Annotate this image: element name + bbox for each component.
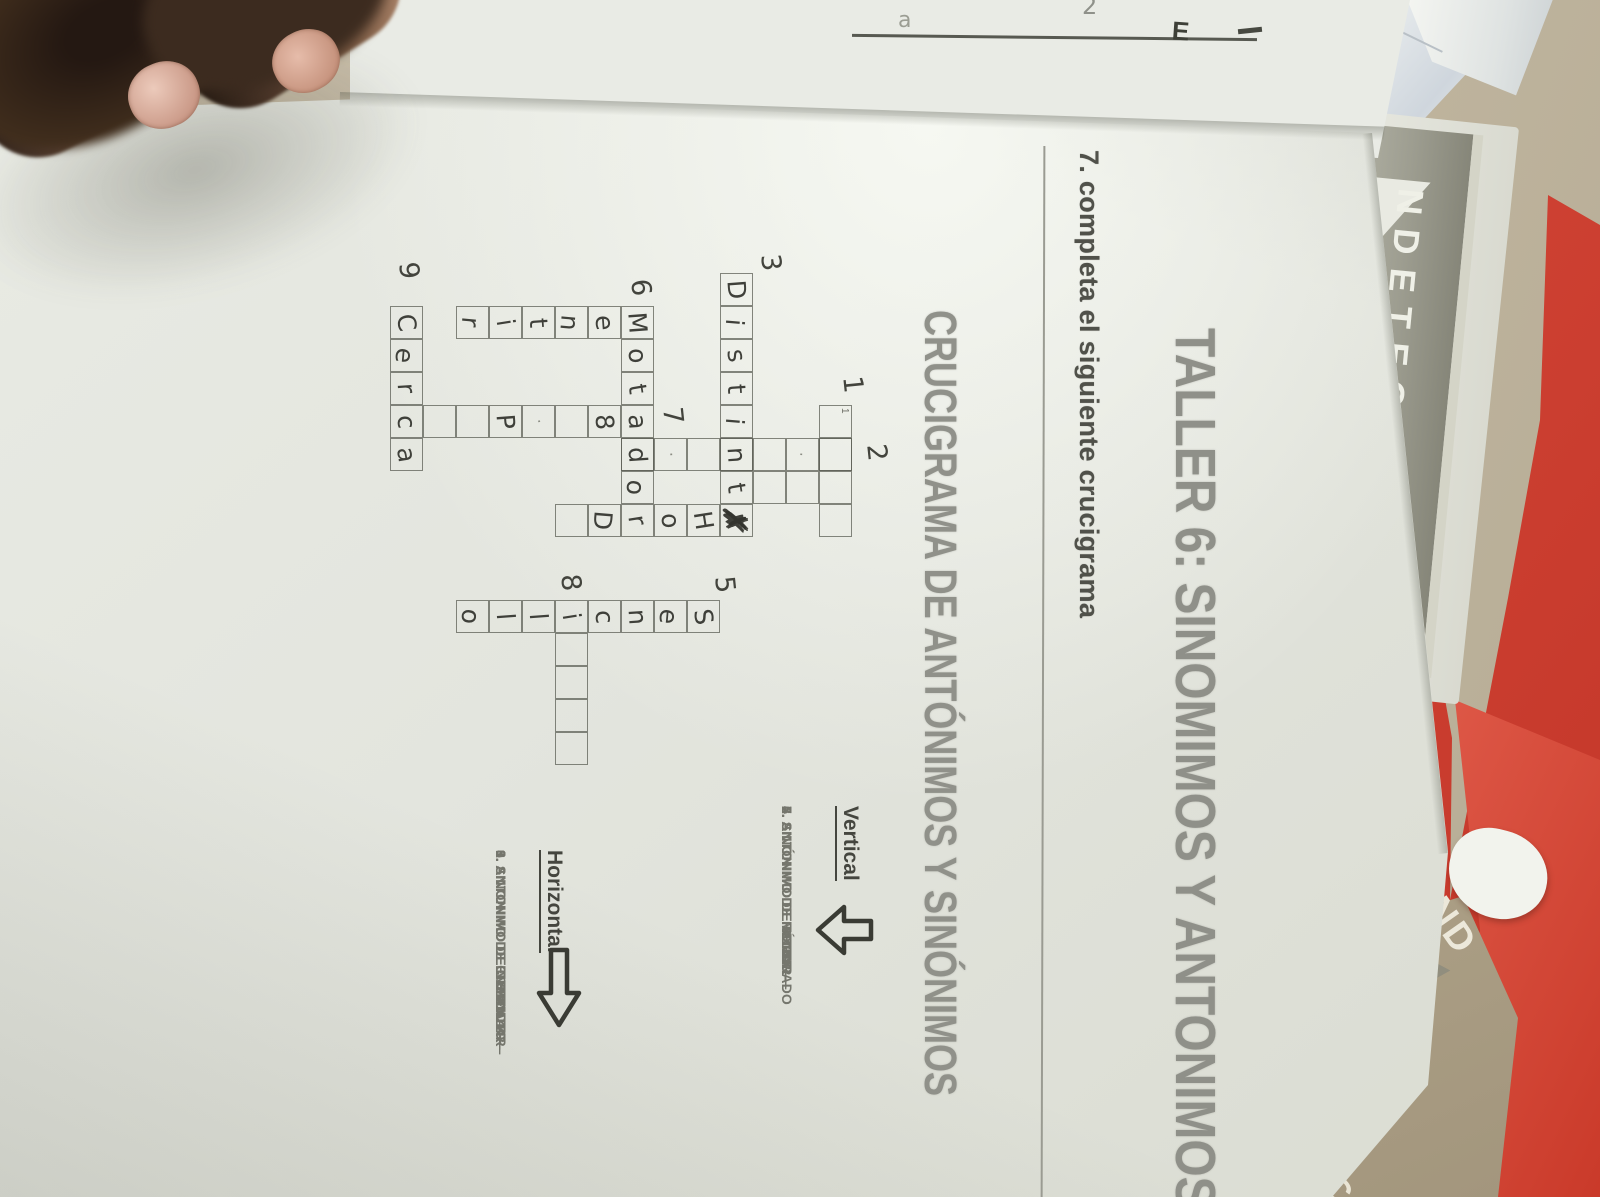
handwritten-letter: t	[526, 317, 552, 329]
handwritten-letter: n	[723, 446, 749, 464]
grid-cell: n	[720, 438, 753, 471]
grid-cell: 1	[819, 405, 852, 438]
grid-number-label: 6	[624, 277, 657, 297]
handwritten-letter: e	[391, 347, 417, 365]
handwritten-letter: D	[589, 510, 616, 531]
handwritten-letter: ·	[663, 452, 678, 458]
handwritten-letter: t	[723, 481, 749, 495]
grid-cell: H	[687, 504, 720, 537]
grid-cell	[456, 405, 489, 438]
grid-cell	[555, 405, 588, 438]
grid-cell: e	[654, 600, 687, 633]
handwritten-letter: l	[526, 612, 551, 621]
grid-cell: ✗	[720, 504, 753, 537]
handwritten-letter: ·	[793, 451, 808, 457]
grid-cell: P	[489, 405, 522, 438]
handwritten-letter: c	[592, 609, 618, 624]
arrow-right-icon	[534, 943, 584, 1031]
handwritten-letter: i	[722, 417, 748, 426]
handwritten-letter: d	[624, 446, 650, 464]
handwritten-letter: t	[724, 383, 750, 395]
handwritten-letter: P	[493, 413, 519, 430]
grid-cell	[555, 666, 588, 699]
grid-cell	[687, 438, 720, 471]
grid-cell	[819, 471, 852, 504]
handwritten-letter: ✗	[718, 506, 750, 534]
grid-cell: D	[588, 504, 621, 537]
grid-cell: S	[687, 600, 720, 633]
handwritten-letter: ·	[531, 418, 547, 425]
grid-cell: n	[555, 306, 588, 339]
horizontal-section-label: Horizontal	[539, 850, 566, 953]
grid-cell: l	[489, 600, 522, 633]
grid-cell	[753, 438, 786, 471]
grid-cell	[819, 504, 852, 537]
worksheet-title: TALLER 6: SINOMIMOS Y ANTONIMOS	[1162, 328, 1228, 1197]
grid-cell: c	[390, 405, 423, 438]
handwritten-letter: o	[657, 512, 683, 529]
grid-cell	[555, 504, 588, 537]
grid-cell: e	[390, 339, 423, 372]
grid-cell: ·	[522, 405, 555, 438]
grid-number-label: 7	[656, 405, 689, 425]
grid-cell	[555, 633, 588, 666]
grid-cell: 8	[588, 405, 621, 438]
grid-cell	[555, 699, 588, 732]
grid-number-label: 2	[860, 442, 893, 462]
divider-line	[1041, 146, 1046, 1197]
worksheet-instruction: 7. completa el siguiente crucigrama	[1073, 150, 1104, 618]
hand-holding-paper	[0, 0, 520, 320]
handwritten-letter: a	[624, 413, 650, 430]
grid-cell: a	[621, 405, 654, 438]
handwritten-letter: S	[690, 607, 717, 627]
grid-cell: a	[390, 438, 423, 471]
vertical-section-label: Vertical	[835, 806, 862, 881]
handwritten-letter: c	[394, 414, 420, 429]
handwritten-letter: t	[624, 382, 650, 396]
grid-cell: r	[621, 504, 654, 537]
grid-cell	[555, 732, 588, 765]
grid-number-label: 3	[754, 252, 787, 272]
handwritten-letter: D	[723, 279, 749, 300]
clue-item: 7. SINÓNIMO DE HONDO—	[777, 806, 797, 988]
grid-cell: ·	[654, 438, 687, 471]
handwritten-letter: o	[457, 608, 483, 625]
handwritten-letter: s	[723, 347, 750, 364]
handwritten-letter: n	[556, 313, 582, 331]
grid-cell: c	[588, 600, 621, 633]
handwritten-letter: M	[624, 311, 650, 334]
grid-cell: s	[720, 339, 753, 372]
grid-cell	[423, 405, 456, 438]
handwritten-letter: l	[493, 612, 518, 621]
handwritten-letter: e	[591, 314, 617, 331]
handwritten-letter: i	[722, 318, 748, 327]
handwritten-letter: n	[624, 608, 650, 626]
grid-cell	[786, 471, 819, 504]
handwritten-letter: H	[690, 509, 718, 531]
grid-cell: i	[720, 306, 753, 339]
crossword-heading: CRUCIGRAMA DE ANTÓNIMOS Y SINÓNIMOS	[914, 310, 966, 1096]
handwritten-letter: o	[622, 479, 648, 496]
grid-number-label: 1	[836, 374, 869, 394]
handwritten-letter: r	[624, 513, 650, 527]
printed-cell-number: 1	[839, 408, 850, 414]
grid-cell: o	[621, 339, 654, 372]
handwritten-letter: i	[559, 611, 585, 622]
grid-cell: i	[720, 405, 753, 438]
grid-cell: o	[621, 471, 654, 504]
grid-cell: D	[720, 273, 753, 306]
grid-cell: d	[621, 438, 654, 471]
grid-cell: i	[555, 600, 588, 633]
grid-cell: o	[456, 600, 489, 633]
grid-number-label: 8	[554, 572, 587, 592]
grid-cell: ·	[786, 438, 819, 471]
grid-cell: r	[390, 372, 423, 405]
grid-cell: t	[621, 372, 654, 405]
photo-scene: ND DETEC pL NDETEC E a 2 TALLER 6: SINOM…	[0, 0, 1600, 1197]
handwritten-letter: a	[393, 445, 420, 464]
grid-cell: e	[588, 306, 621, 339]
handwritten-letter: 8	[591, 413, 617, 431]
grid-cell	[753, 471, 786, 504]
grid-cell: M	[621, 306, 654, 339]
grid-cell: t	[522, 306, 555, 339]
grid-cell: t	[720, 372, 753, 405]
clue-item: 9. ANTONIMO DE CERCA—	[491, 850, 511, 1034]
grid-cell: n	[621, 600, 654, 633]
arrow-down-icon	[812, 902, 876, 958]
grid-cell: o	[654, 504, 687, 537]
handwritten-letter: r	[394, 382, 420, 394]
grid-number-label: 5	[708, 574, 741, 594]
grid-cell: t	[720, 471, 753, 504]
handwritten-letter: e	[655, 608, 681, 626]
grid-cell	[819, 438, 852, 471]
grid-cell: l	[522, 600, 555, 633]
handwritten-letter: o	[624, 347, 650, 364]
